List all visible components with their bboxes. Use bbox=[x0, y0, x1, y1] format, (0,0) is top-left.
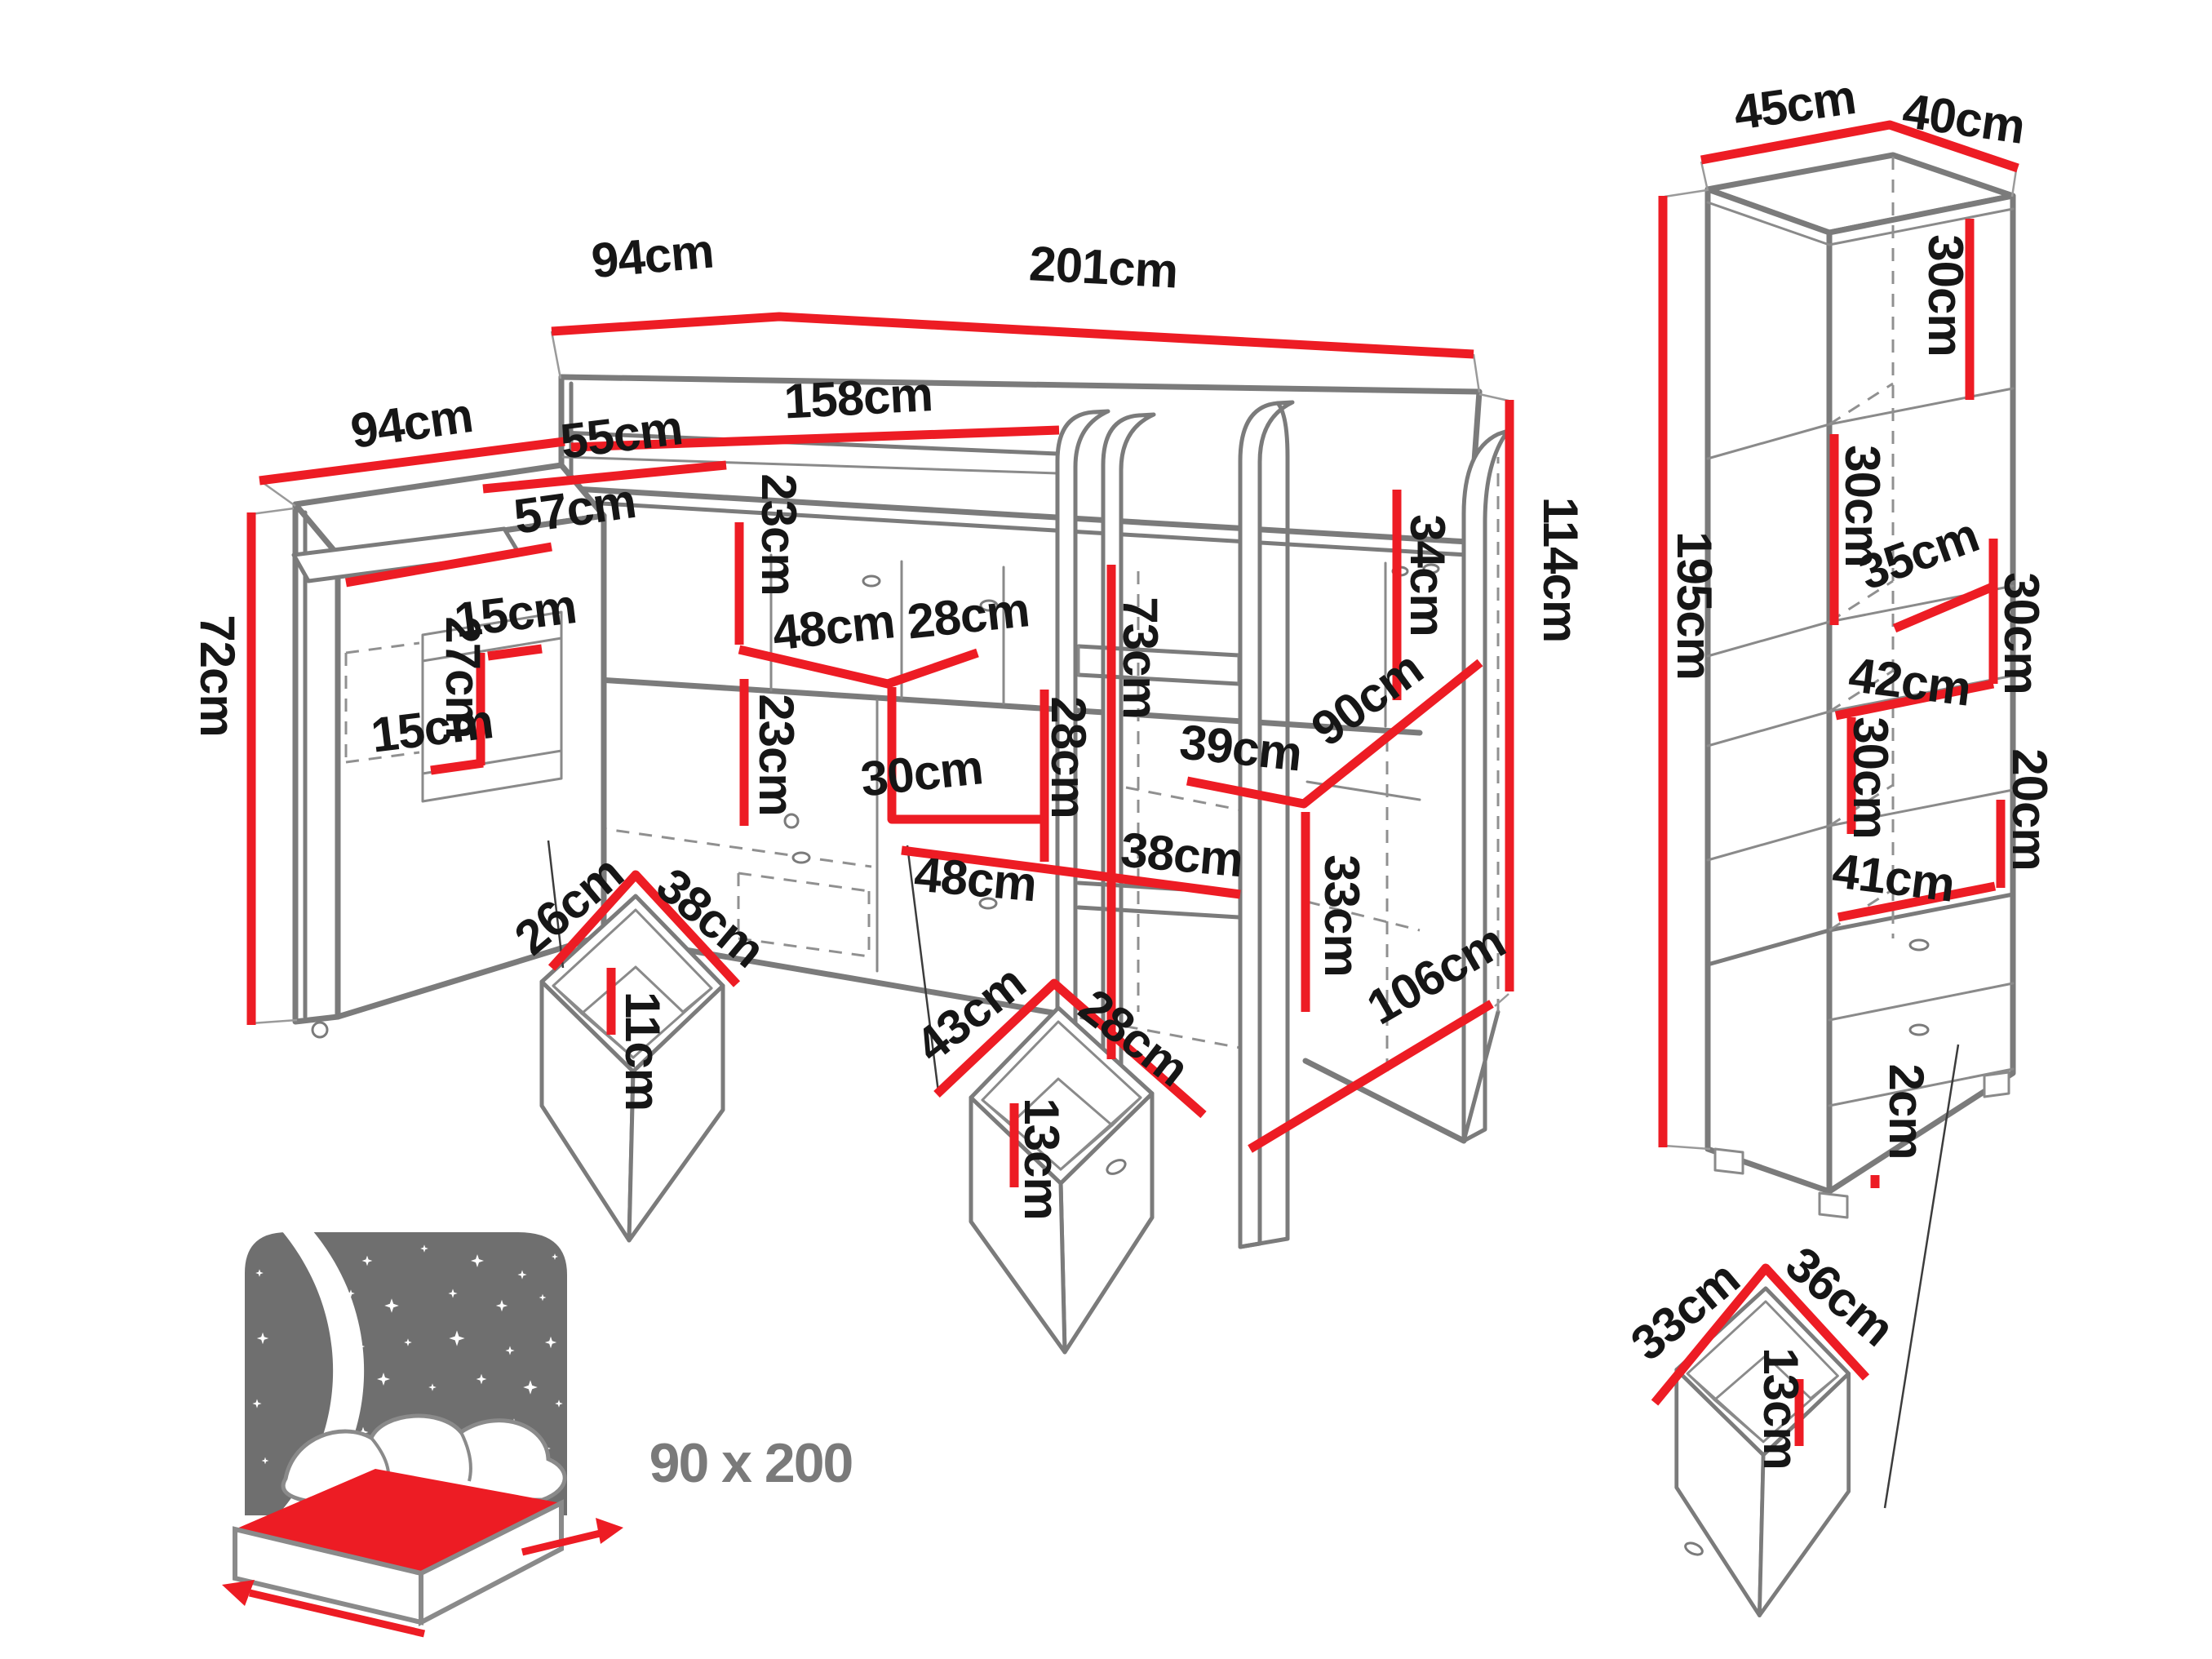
dimension-label-cabinet: 30cm bbox=[1843, 716, 1898, 838]
dimension-label-bed: 28cm bbox=[905, 582, 1032, 649]
mattress-size-label: 90 x 200 bbox=[649, 1432, 853, 1494]
bed-icon bbox=[222, 1231, 623, 1634]
dimension-label-desk: 94cm bbox=[348, 388, 476, 459]
dimension-label-bed: 73cm bbox=[1113, 597, 1168, 718]
dimension-label-bed: 33cm bbox=[1314, 854, 1369, 976]
dimension-label-bed: 158cm bbox=[782, 366, 933, 428]
dimension-label-cabinet: 20cm bbox=[2002, 748, 2057, 870]
furniture-dimension-diagram: 94cm201cm158cm55cm57cm23cm48cm28cm23cm30… bbox=[0, 0, 2212, 1659]
dimension-label-bed: 48cm bbox=[912, 846, 1039, 912]
diagram-svg: 94cm201cm158cm55cm57cm23cm48cm28cm23cm30… bbox=[0, 0, 2212, 1659]
dimension-label-drawer_under_desk: 11cm bbox=[615, 991, 670, 1111]
dimension-label-drawer_under_bed: 13cm bbox=[1014, 1098, 1069, 1219]
dimension-label-cabinet: 30cm bbox=[1918, 234, 1973, 356]
dimension-label-bed: 34cm bbox=[1400, 514, 1455, 636]
dimension-label-desk: 72cm bbox=[190, 614, 245, 736]
dimension-label-bed: 38cm bbox=[1119, 822, 1245, 887]
dimension-label-cabinet: 30cm bbox=[1994, 572, 2049, 694]
dimension-label-bed: 90cm bbox=[1301, 641, 1432, 756]
dimension-label-bed: 23cm bbox=[751, 473, 806, 595]
dimension-label-bed: 28cm bbox=[1041, 696, 1096, 818]
dimension-label-bed: 23cm bbox=[749, 694, 804, 815]
dimension-label-bed: 30cm bbox=[858, 739, 986, 806]
dimension-label-cabinet: 195cm bbox=[1667, 531, 1722, 680]
drawer-handle bbox=[1684, 1541, 1704, 1557]
dimension-label-bed: 39cm bbox=[1177, 714, 1305, 781]
dimension-label-bed: 201cm bbox=[1028, 236, 1179, 298]
dimension-label-bed: 106cm bbox=[1358, 913, 1514, 1035]
dimension-label-bed: 94cm bbox=[589, 223, 716, 288]
dimension-label-bed: 48cm bbox=[770, 593, 898, 660]
dimension-label-bed: 114cm bbox=[1533, 497, 1588, 643]
dimension-label-cabinet: 40cm bbox=[1899, 83, 2028, 154]
dimension-label-bed: 55cm bbox=[557, 400, 685, 469]
dimension-label-cabinet: 2cm bbox=[1879, 1063, 1934, 1159]
dimension-label-cabinet_drawer: 13cm bbox=[1753, 1347, 1808, 1469]
